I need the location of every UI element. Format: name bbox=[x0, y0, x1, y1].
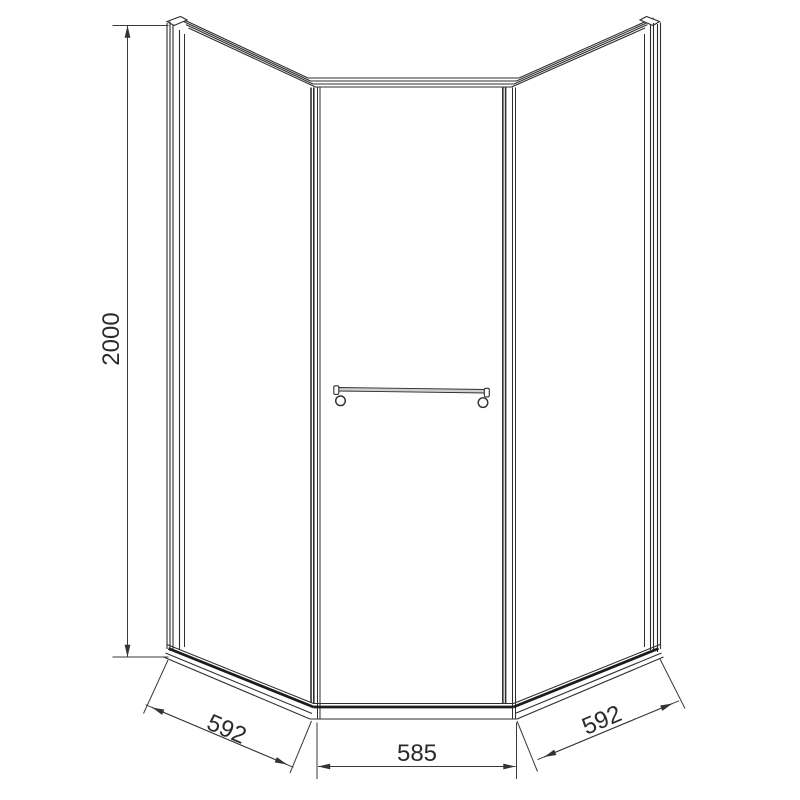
towel-bar bbox=[334, 386, 490, 408]
top-frame bbox=[167, 17, 660, 88]
towel-bar-right-cap bbox=[484, 388, 489, 397]
towel-bar-right-knob bbox=[478, 398, 488, 408]
dimension-height-label: 2000 bbox=[98, 312, 125, 365]
drawing-canvas: 2000 592 585 592 bbox=[0, 0, 800, 800]
towel-bar-left-cap bbox=[334, 386, 339, 395]
dimension-right-label: 592 bbox=[578, 700, 625, 741]
dimension-right-width: 592 bbox=[517, 659, 685, 772]
right-side-panel bbox=[645, 23, 661, 653]
left-post bbox=[167, 22, 180, 652]
bottom-right-rail-profile bbox=[514, 649, 659, 708]
top-left-rail bbox=[180, 18, 316, 87]
door-right-frame-outer bbox=[513, 88, 516, 719]
dimension-height: 2000 bbox=[98, 26, 169, 658]
door-right-frame bbox=[503, 88, 506, 704]
right-post bbox=[651, 23, 661, 653]
dimension-left-label: 592 bbox=[203, 709, 250, 750]
door-left-frame-outer bbox=[318, 88, 321, 719]
towel-bar-left-knob bbox=[336, 396, 346, 406]
top-center-rail bbox=[308, 78, 519, 87]
bottom-left-rail-profile bbox=[169, 649, 314, 708]
dimension-front-label: 585 bbox=[397, 740, 437, 767]
towel-bar-rail bbox=[337, 388, 486, 394]
left-side-panel bbox=[167, 22, 185, 652]
door-left-frame bbox=[311, 88, 314, 704]
top-right-rail bbox=[512, 18, 654, 87]
dimension-left-width: 592 bbox=[144, 660, 312, 773]
dimension-front-width: 585 bbox=[317, 723, 517, 780]
bottom-track bbox=[164, 645, 664, 720]
shower-enclosure-drawing: 2000 592 585 592 bbox=[0, 0, 800, 800]
